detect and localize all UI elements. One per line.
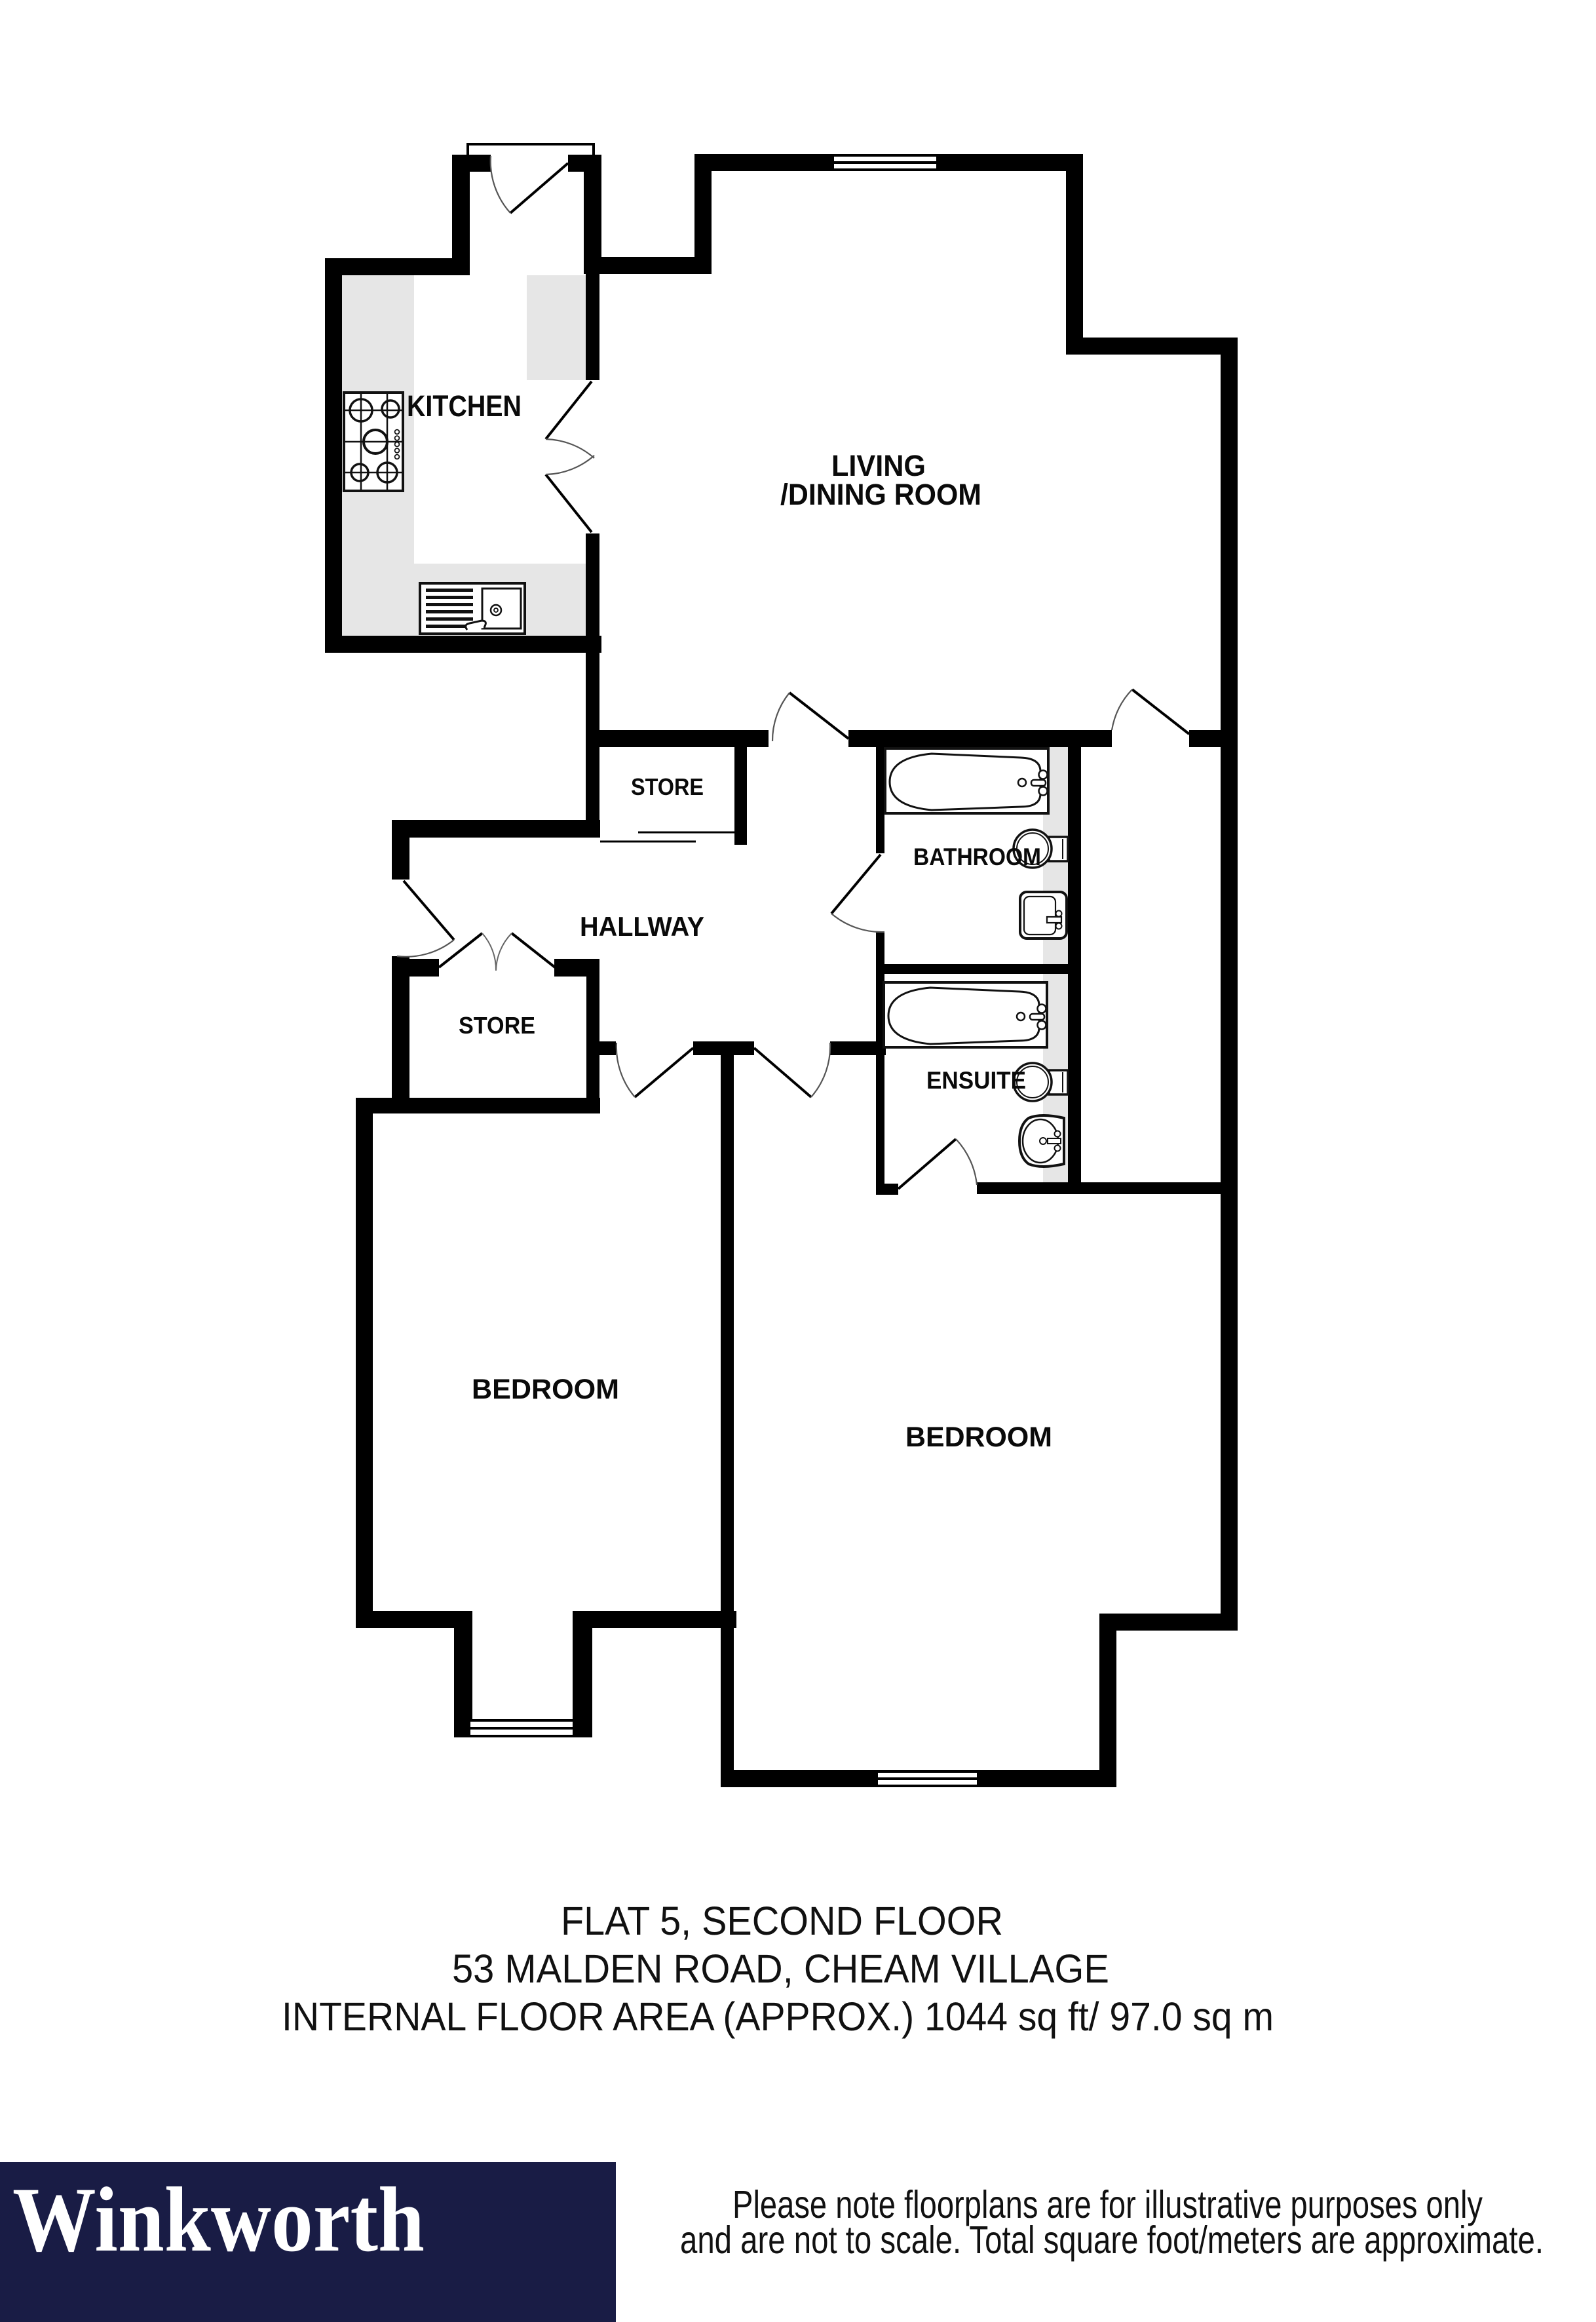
svg-text:BEDROOM: BEDROOM <box>905 1422 1052 1453</box>
svg-text:STORE: STORE <box>459 1012 535 1039</box>
svg-text:FLAT 5, SECOND FLOOR: FLAT 5, SECOND FLOOR <box>561 1899 1003 1943</box>
svg-text:Winkworth: Winkworth <box>12 2169 425 2271</box>
svg-text:HALLWAY: HALLWAY <box>580 911 704 942</box>
svg-text:and are not to scale. Total sq: and are not to scale. Total square foot/… <box>680 2218 1544 2262</box>
svg-text:KITCHEN: KITCHEN <box>407 389 522 423</box>
svg-text:/DINING ROOM: /DINING ROOM <box>780 478 981 511</box>
svg-text:53 MALDEN ROAD, CHEAM VILLAGE: 53 MALDEN ROAD, CHEAM VILLAGE <box>452 1946 1109 1991</box>
svg-text:INTERNAL FLOOR AREA (APPROX.): INTERNAL FLOOR AREA (APPROX.) 1044 sq ft… <box>282 1994 1274 2039</box>
svg-text:BEDROOM: BEDROOM <box>472 1374 619 1405</box>
svg-text:STORE: STORE <box>631 773 704 800</box>
svg-text:ENSUITE: ENSUITE <box>926 1067 1026 1094</box>
svg-text:BATHROOM: BATHROOM <box>913 843 1041 870</box>
